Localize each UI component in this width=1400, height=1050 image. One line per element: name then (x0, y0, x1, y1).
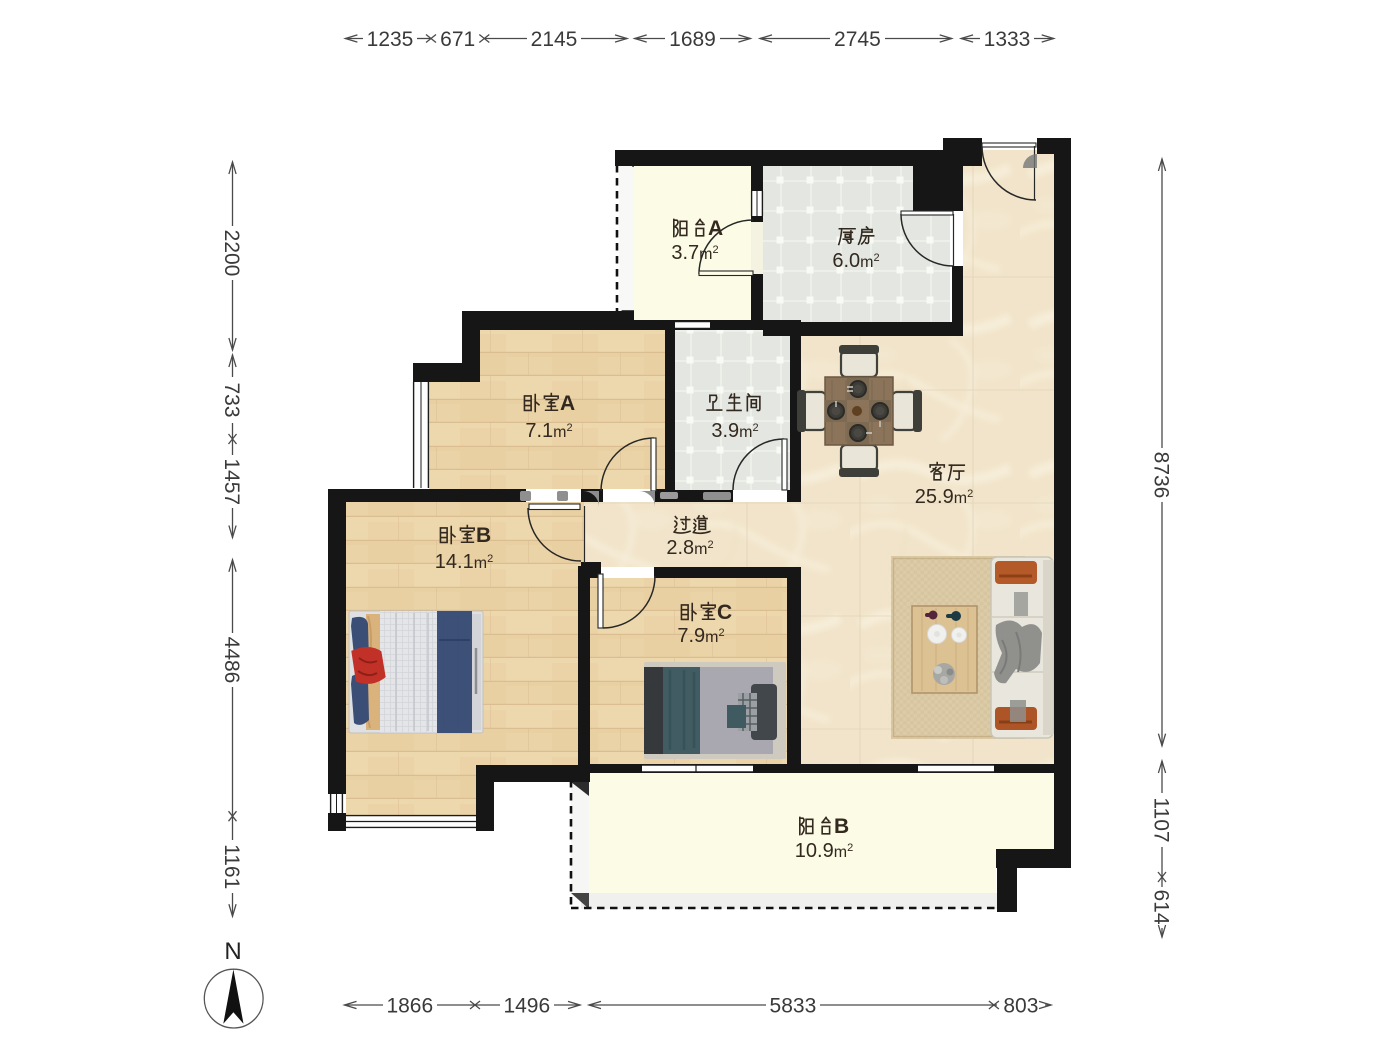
svg-text:A: A (560, 392, 575, 415)
svg-text:1161: 1161 (220, 844, 243, 889)
svg-text:671: 671 (440, 28, 475, 51)
svg-text:B: B (834, 815, 849, 838)
svg-text:3.7m2: 3.7m2 (671, 242, 718, 264)
svg-text:1496: 1496 (503, 995, 550, 1018)
svg-text:6.0m2: 6.0m2 (832, 250, 879, 272)
svg-text:2.8m2: 2.8m2 (666, 537, 713, 559)
svg-text:C: C (717, 601, 732, 624)
svg-text:14.1m2: 14.1m2 (435, 551, 493, 573)
svg-text:3.9m2: 3.9m2 (711, 420, 758, 442)
svg-text:1235: 1235 (367, 28, 414, 51)
svg-text:1866: 1866 (386, 995, 433, 1018)
svg-text:B: B (476, 524, 491, 547)
svg-text:4486: 4486 (220, 637, 243, 684)
svg-text:7.9m2: 7.9m2 (677, 625, 724, 647)
svg-text:1333: 1333 (984, 28, 1031, 51)
svg-text:N: N (224, 938, 241, 965)
svg-text:2200: 2200 (220, 230, 243, 277)
svg-text:803: 803 (1003, 995, 1038, 1018)
svg-text:8736: 8736 (1150, 452, 1173, 499)
svg-text:2745: 2745 (834, 28, 881, 51)
svg-text:5833: 5833 (770, 995, 817, 1018)
svg-text:2145: 2145 (531, 28, 578, 51)
svg-text:1457: 1457 (220, 458, 243, 505)
svg-text:7.1m2: 7.1m2 (525, 420, 572, 442)
svg-text:10.9m2: 10.9m2 (795, 840, 853, 862)
svg-text:1107: 1107 (1150, 797, 1173, 842)
svg-text:733: 733 (220, 382, 243, 417)
svg-text:A: A (708, 217, 723, 240)
svg-text:25.9m2: 25.9m2 (915, 486, 973, 508)
svg-text:1689: 1689 (669, 28, 716, 51)
svg-text:614: 614 (1150, 889, 1173, 924)
